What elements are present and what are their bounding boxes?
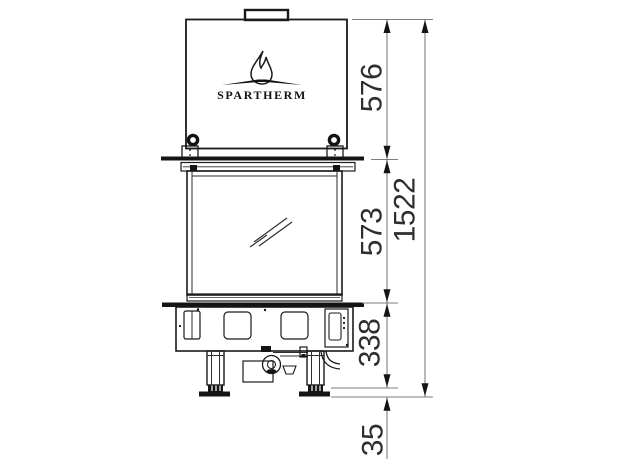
rivet-dot: [264, 309, 266, 311]
dim-label-firebox-height: 573: [356, 208, 389, 257]
screw-dot: [343, 317, 345, 319]
arrowhead: [384, 20, 391, 33]
leg-right: [299, 351, 330, 397]
foot-plate: [299, 392, 330, 397]
reflection-stroke: [254, 218, 287, 242]
fireplace-front-view: SPARTHERM: [161, 10, 364, 397]
glass-reflection: [250, 218, 292, 247]
lug-eyelet-icon: [329, 135, 338, 144]
reflection-stroke: [259, 222, 292, 246]
glass-door: [187, 171, 342, 295]
spartherm-logo: SPARTHERM: [217, 51, 307, 102]
top-mounting-flange: [161, 157, 364, 161]
leg-body: [207, 351, 224, 385]
flame-icon: [251, 51, 272, 84]
dim-label-hood-height: 576: [356, 64, 389, 113]
rivet-dot: [346, 344, 348, 346]
arrowhead: [384, 304, 391, 317]
arrowhead: [422, 20, 429, 33]
leg-left: [199, 351, 230, 397]
valve-base: [267, 369, 277, 374]
dim-label-floor-clearance: 35: [357, 424, 390, 456]
screw-dot: [189, 149, 191, 151]
access-opening-left: [224, 312, 251, 339]
connector-block: [261, 346, 271, 352]
dim-label-total-height: 1522: [389, 178, 422, 243]
top-frame-rail: [181, 163, 355, 172]
arrowhead: [422, 383, 429, 396]
latch-unit-right: [325, 309, 348, 347]
lifting-lug-right: [327, 135, 343, 159]
valve-core: [268, 361, 276, 369]
rivet-dot: [197, 308, 199, 310]
screw-dot: [189, 154, 191, 156]
brand-wordmark: SPARTHERM: [217, 88, 307, 102]
lifting-lug-left: [182, 135, 198, 159]
lug-eyelet-icon: [188, 135, 197, 144]
arrowhead: [384, 398, 391, 411]
dim-label-base-height: 338: [354, 319, 387, 368]
hood-panel: [186, 20, 347, 149]
screw-dot: [343, 322, 345, 324]
arrowhead: [384, 374, 391, 387]
arrowhead: [384, 160, 391, 173]
latch-slot: [329, 313, 341, 340]
base-plinth: [176, 307, 353, 351]
pipe-joint: [302, 354, 306, 358]
funnel: [283, 366, 296, 374]
fireplace-dimension-drawing: SPARTHERM: [0, 0, 624, 460]
gas-pipe-inner: [326, 351, 340, 364]
reflection-stroke: [250, 235, 267, 247]
chimney-collar: [245, 10, 288, 20]
technical-drawing-canvas: SPARTHERM: [0, 0, 624, 460]
base-body: [176, 307, 353, 351]
firebox-frame: [187, 171, 342, 295]
foot-plate: [199, 392, 230, 397]
screw-dot: [334, 154, 336, 156]
screw-dot: [334, 149, 336, 151]
screw-dot: [343, 327, 345, 329]
rivet-dot: [179, 325, 181, 327]
arrowhead: [384, 146, 391, 159]
arrowhead: [384, 289, 391, 302]
access-opening-right: [281, 312, 308, 339]
